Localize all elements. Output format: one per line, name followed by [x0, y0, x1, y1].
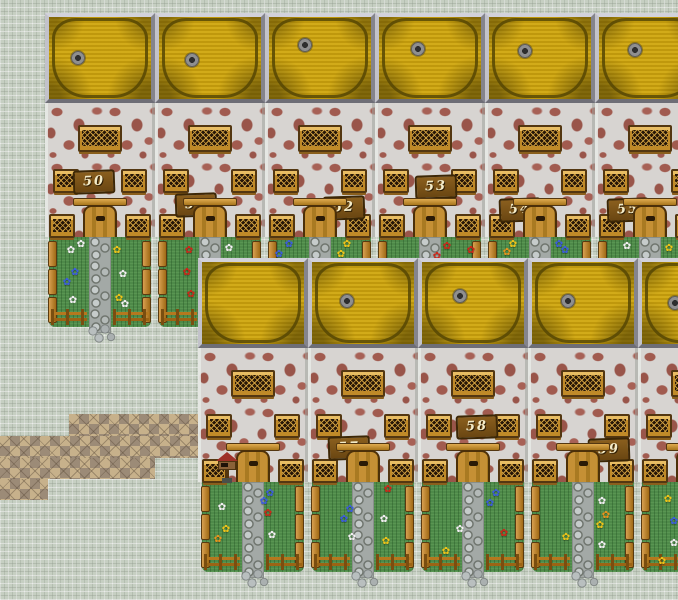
window-lattice [540, 419, 558, 432]
house-door[interactable] [83, 205, 117, 237]
door-handle-icon [249, 461, 258, 466]
window-lattice [430, 419, 448, 432]
house-wall [198, 348, 308, 482]
door-handle-icon [206, 216, 215, 221]
house-roof [155, 13, 265, 103]
small-window [206, 414, 232, 438]
small-window [312, 459, 338, 483]
lattice-window [671, 370, 678, 397]
flower-icon: ✿ [382, 484, 394, 496]
window-lattice [632, 130, 668, 146]
door-handle-icon [579, 461, 588, 466]
house-roof [198, 258, 308, 348]
small-window [121, 169, 147, 193]
fence-rail [314, 554, 350, 570]
roof-seam [602, 18, 678, 98]
house-roof [418, 258, 528, 348]
flower-icon: ✿ [663, 243, 675, 255]
house-door[interactable] [523, 205, 557, 237]
door-handle-icon [646, 216, 655, 221]
chimney-icon [185, 53, 199, 67]
flower-icon: ✿ [338, 514, 350, 526]
fence-rail [376, 554, 412, 570]
flower-icon: ✿ [594, 520, 606, 532]
house-wall: 50 [45, 103, 155, 237]
fence-rail [113, 309, 149, 325]
flower-icon: ✿ [183, 245, 195, 257]
small-window [604, 414, 630, 438]
flower-icon: ✿ [346, 532, 358, 544]
fence-post [311, 514, 320, 540]
flower-icon: ✿ [559, 245, 571, 257]
window-lattice [426, 464, 444, 477]
flower-icon: ✿ [498, 528, 510, 540]
small-window [388, 459, 414, 483]
lattice-window [518, 125, 562, 152]
window-lattice [278, 419, 296, 432]
stepping-stones [238, 570, 270, 590]
fence-rail [266, 554, 302, 570]
house-roof [45, 13, 155, 103]
fence-post [201, 514, 210, 540]
window-lattice [522, 130, 558, 146]
window-lattice [129, 219, 147, 232]
window-lattice [388, 419, 406, 432]
door-handle-icon [359, 461, 368, 466]
lattice-window [78, 125, 122, 152]
window-lattice [536, 464, 554, 477]
window-lattice [608, 419, 626, 432]
dirt-path-segment [0, 436, 203, 458]
roof-seam [492, 18, 588, 98]
house-wall: 59 [528, 348, 638, 482]
fence-post [158, 269, 167, 295]
chimney-icon [668, 296, 678, 310]
flower-icon: ✿ [656, 556, 668, 568]
door-handle-icon [316, 216, 325, 221]
flower-icon: ✿ [119, 299, 131, 311]
flower-icon: ✿ [212, 534, 224, 546]
small-window [671, 169, 678, 193]
fence-post [142, 241, 151, 267]
window-lattice [316, 464, 334, 477]
window-lattice [497, 174, 515, 187]
lattice-window [231, 370, 275, 397]
roof-seam [162, 18, 258, 98]
door-handle-icon [536, 216, 545, 221]
fence-post [531, 486, 540, 512]
flower-icon: ✿ [111, 245, 123, 257]
window-lattice [502, 464, 520, 477]
fence-post [625, 486, 634, 512]
small-window [269, 214, 295, 238]
window-lattice [192, 130, 228, 146]
dirt-path-segment [0, 458, 155, 479]
small-window [426, 414, 452, 438]
game-map: 50✿✿✿✿✿✿✿✿✿51✿✿✿✿52✿✿✿✿53✿✿✿54✿✿✿✿55✿✿✿✿… [0, 0, 678, 600]
roof-seam [52, 18, 148, 98]
small-window [383, 169, 409, 193]
small-window [532, 459, 558, 483]
window-lattice [383, 219, 401, 232]
lattice-window [341, 370, 385, 397]
window-lattice [349, 219, 367, 232]
chimney-icon [628, 43, 642, 57]
small-window [455, 214, 481, 238]
flower-icon: ✿ [440, 546, 452, 558]
fence-post [421, 486, 430, 512]
window-lattice [320, 419, 338, 432]
house: 59✿✿✿✿✿ [528, 258, 638, 600]
house-wall: 53 [375, 103, 485, 237]
window-lattice [282, 464, 300, 477]
house: ✿✿✿✿✿✿✿ [198, 258, 308, 600]
small-window [49, 214, 75, 238]
small-window [316, 414, 342, 438]
fence-post [515, 514, 524, 540]
window-lattice [455, 375, 491, 391]
flower-icon: ✿ [216, 502, 228, 514]
window-lattice [459, 219, 477, 232]
house-door[interactable] [413, 205, 447, 237]
small-window [498, 459, 524, 483]
small-window [493, 169, 519, 193]
flower-icon: ✿ [181, 267, 193, 279]
house-wall: 52 [265, 103, 375, 237]
window-lattice [163, 219, 181, 232]
fence-post [641, 486, 650, 512]
stone-path [89, 237, 111, 333]
window-lattice [646, 464, 664, 477]
house-wall: 51 [155, 103, 265, 237]
flower-icon: ✿ [75, 239, 87, 251]
garden: ✿✿✿✿✿ [532, 482, 634, 600]
garden: ✿✿✿✿✿✿✿✿✿ [49, 237, 151, 373]
flower-icon: ✿ [621, 241, 633, 253]
dirt-path-segment [0, 479, 48, 500]
flower-icon: ✿ [596, 540, 608, 552]
fence-post [201, 486, 210, 512]
window-lattice [498, 419, 516, 432]
house-roof [265, 13, 375, 103]
chimney-icon [518, 44, 532, 58]
lattice-window [188, 125, 232, 152]
window-lattice [387, 174, 405, 187]
fence-rail [161, 309, 197, 325]
window-lattice [412, 130, 448, 146]
flower-icon: ✿ [596, 496, 608, 508]
window-lattice [455, 174, 473, 187]
house: 50✿✿✿✿✿✿✿✿✿ [45, 13, 155, 373]
small-window [603, 169, 629, 193]
small-window [163, 169, 189, 193]
flower-icon: ✿ [465, 245, 477, 257]
small-window [561, 169, 587, 193]
window-lattice [210, 419, 228, 432]
small-window [341, 169, 367, 193]
window-lattice [235, 375, 271, 391]
small-window [646, 414, 672, 438]
fence-post [405, 514, 414, 540]
flower-icon: ✿ [662, 494, 674, 506]
small-window [565, 214, 591, 238]
fence-rail [204, 554, 240, 570]
lattice-window [408, 125, 452, 152]
mailbox-roof [216, 452, 238, 461]
window-lattice [345, 174, 363, 187]
house-roof [595, 13, 678, 103]
window-lattice [235, 174, 253, 187]
garden: ✿✿✿✿✿✿ [312, 482, 414, 600]
house-door[interactable] [346, 450, 380, 482]
fence-post [48, 269, 57, 295]
flower-icon: ✿ [117, 269, 129, 281]
fence-post [48, 241, 57, 267]
flower-icon: ✿ [380, 536, 392, 548]
fence-post [311, 486, 320, 512]
window-lattice [607, 174, 625, 187]
house-roof [308, 258, 418, 348]
flower-icon: ✿ [454, 524, 466, 536]
flower-icon: ✿ [61, 277, 73, 289]
fence-post [641, 514, 650, 540]
house-door[interactable] [633, 205, 667, 237]
house-door[interactable] [566, 450, 600, 482]
garden: ✿✿✿✿✿ [422, 482, 524, 600]
small-window [642, 459, 668, 483]
door-lintel [666, 443, 678, 451]
window-lattice [167, 174, 185, 187]
window-lattice [277, 174, 295, 187]
chimney-icon [298, 38, 312, 52]
house-number-plate: 50 [73, 169, 116, 194]
window-lattice [53, 219, 71, 232]
flower-icon: ✿ [378, 514, 390, 526]
house-number-plate: 58 [456, 414, 499, 439]
fence-post [295, 514, 304, 540]
window-lattice [650, 419, 668, 432]
house-wall [638, 348, 678, 482]
house-number-plate: 53 [415, 174, 458, 199]
house-wall: 55 [595, 103, 678, 237]
mailbox-icon[interactable] [216, 452, 238, 484]
house-door[interactable] [456, 450, 490, 482]
door-handle-icon [426, 216, 435, 221]
window-lattice [239, 219, 257, 232]
fence-post [142, 269, 151, 295]
window-lattice [392, 464, 410, 477]
lattice-window [298, 125, 342, 152]
stone-path [572, 482, 594, 578]
window-lattice [125, 174, 143, 187]
dirt-path-segment [69, 414, 203, 436]
stepping-stones [568, 570, 600, 590]
flower-icon: ✿ [484, 498, 496, 510]
fence-rail [486, 554, 522, 570]
chimney-icon [340, 294, 354, 308]
house-wall: 54 [485, 103, 595, 237]
roof-seam [272, 18, 368, 98]
roof-seam [535, 263, 631, 343]
small-window [379, 214, 405, 238]
fence-post [405, 486, 414, 512]
small-window [273, 169, 299, 193]
roof-seam [205, 263, 301, 343]
fence-post [515, 486, 524, 512]
garden: ✿✿✿✿ [642, 482, 678, 600]
small-window [235, 214, 261, 238]
chimney-icon [71, 51, 85, 65]
house-roof [375, 13, 485, 103]
small-window [278, 459, 304, 483]
small-window [608, 459, 634, 483]
flower-icon: ✿ [262, 508, 274, 520]
fence-post [625, 514, 634, 540]
small-window [422, 459, 448, 483]
stone-path [352, 482, 374, 578]
window-lattice [612, 464, 630, 477]
garden: ✿✿✿✿✿✿✿ [202, 482, 304, 600]
lattice-window [628, 125, 672, 152]
fence-post [531, 514, 540, 540]
small-window [536, 414, 562, 438]
chimney-icon [411, 42, 425, 56]
house-wall: 57 [308, 348, 418, 482]
flower-icon: ✿ [668, 516, 678, 528]
flower-icon: ✿ [258, 496, 270, 508]
chimney-icon [453, 289, 467, 303]
flower-icon: ✿ [185, 289, 197, 301]
window-lattice [565, 375, 601, 391]
window-lattice [302, 130, 338, 146]
house-roof [528, 258, 638, 348]
roof-seam [382, 18, 478, 98]
house: 58✿✿✿✿✿ [418, 258, 528, 600]
fence-post [295, 486, 304, 512]
house: 57✿✿✿✿✿✿ [308, 258, 418, 600]
house-roof [485, 13, 595, 103]
window-lattice [569, 219, 587, 232]
small-window [274, 414, 300, 438]
stepping-stones [458, 570, 490, 590]
fence-rail [534, 554, 570, 570]
small-window [125, 214, 151, 238]
house: ✿✿✿✿ [638, 258, 678, 600]
lattice-window [561, 370, 605, 397]
house-door[interactable] [236, 450, 270, 482]
door-handle-icon [469, 461, 478, 466]
flower-icon: ✿ [67, 295, 79, 307]
fence-rail [596, 554, 632, 570]
window-lattice [82, 130, 118, 146]
flower-icon: ✿ [223, 243, 235, 255]
window-lattice [565, 174, 583, 187]
fence-post [421, 514, 430, 540]
house-door[interactable] [193, 205, 227, 237]
mailbox-base [222, 478, 232, 483]
door-handle-icon [96, 216, 105, 221]
fence-rail [51, 309, 87, 325]
chimney-icon [561, 294, 575, 308]
flower-icon: ✿ [266, 530, 278, 542]
fence-post [158, 241, 167, 267]
small-window [384, 414, 410, 438]
flower-icon: ✿ [668, 538, 678, 550]
small-window [159, 214, 185, 238]
flower-icon: ✿ [560, 532, 572, 544]
mailbox-slot [221, 463, 228, 467]
stepping-stones [85, 325, 117, 345]
stepping-stones [348, 570, 380, 590]
small-window [231, 169, 257, 193]
window-lattice [273, 219, 291, 232]
window-lattice [345, 375, 381, 391]
roof-seam [315, 263, 411, 343]
lattice-window [451, 370, 495, 397]
house-door[interactable] [303, 205, 337, 237]
roof-seam [425, 263, 521, 343]
house-wall: 58 [418, 348, 528, 482]
